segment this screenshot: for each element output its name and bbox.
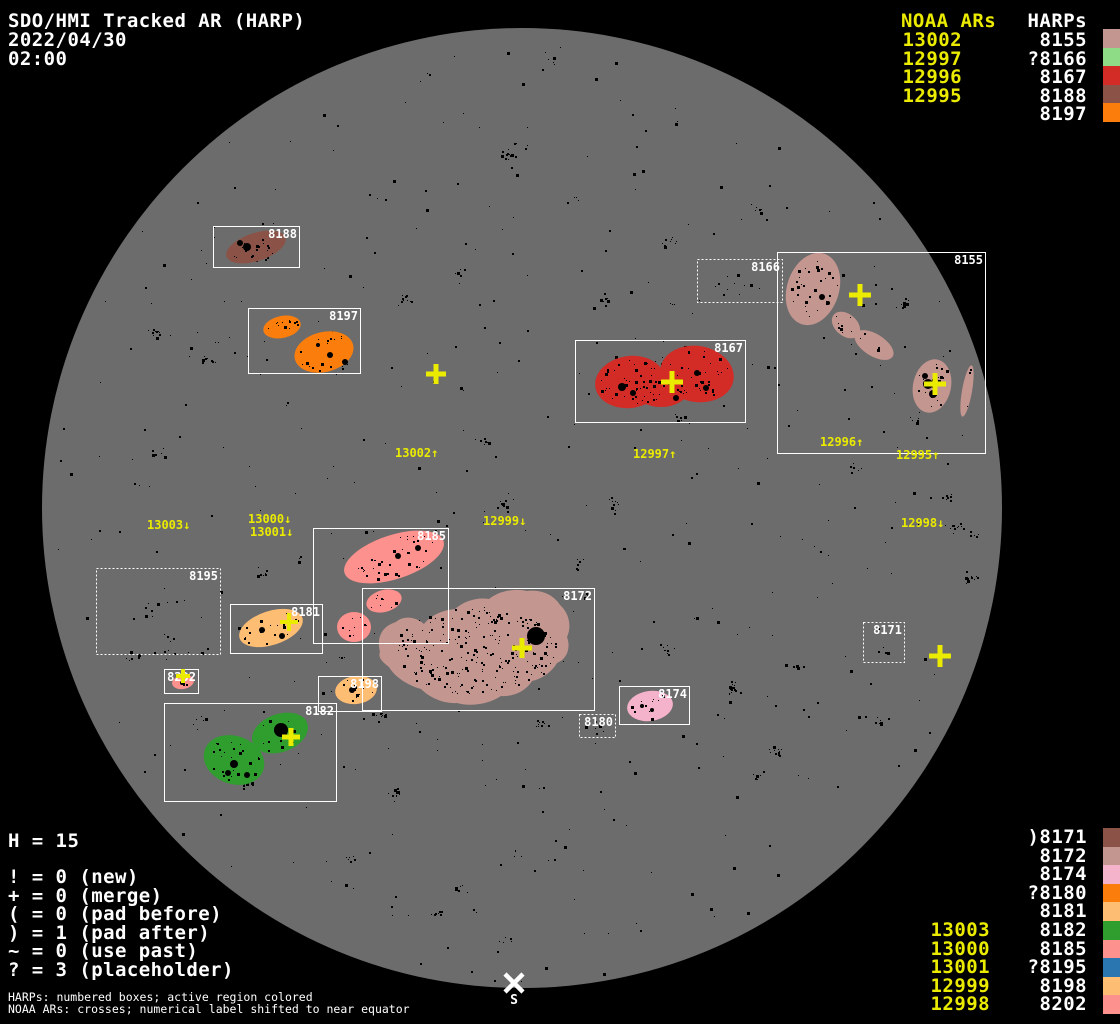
- harp-number: 8202: [890, 995, 1087, 1014]
- harp-map-screenshot: 8188819781668155816781958185818182028198…: [0, 0, 1120, 1024]
- harp-box-label-8182: 8182: [305, 704, 334, 718]
- harp-color-swatch: [1103, 940, 1120, 959]
- noaa-label-12997: 12997↑: [633, 447, 676, 461]
- harp-box-label-8185: 8185: [417, 529, 446, 543]
- harp-box-label-8198: 8198: [350, 677, 379, 691]
- noaa-label-12996: 12996↑: [820, 435, 863, 449]
- harp-box-label-8180: 8180: [584, 715, 613, 729]
- noaa-label-13002: 13002↑: [395, 446, 438, 460]
- harp-color-swatch: [1103, 995, 1120, 1014]
- harp-color-swatch: [1103, 958, 1120, 977]
- time-label: 02:00: [8, 50, 305, 69]
- harp-box-label-8181: 8181: [291, 605, 320, 619]
- legend-bottom-right: )817181728174?81808181130038182130008185…: [890, 0, 1120, 1024]
- harp-box-label-8174: 8174: [658, 687, 687, 701]
- noaa-label-13001: 13001↓: [250, 525, 293, 539]
- harp-color-swatch: [1103, 865, 1120, 884]
- harp-box-label-8166: 8166: [751, 260, 780, 274]
- harp-color-swatch: [1103, 902, 1120, 921]
- noaa-label-12999: 12999↓: [483, 514, 526, 528]
- harp-box-label-8172: 8172: [563, 589, 592, 603]
- solar-disk: [42, 28, 1002, 988]
- harp-color-swatch: [1103, 828, 1120, 847]
- harp-box-label-8167: 8167: [714, 341, 743, 355]
- footnote-noaa: NOAA ARs: crosses; numerical label shift…: [8, 1003, 410, 1015]
- noaa-label-13000: 13000↓: [248, 512, 291, 526]
- flag-stat-line: ? = 3 (placeholder): [8, 961, 234, 980]
- noaa-label-13003: 13003↓: [147, 518, 190, 532]
- harp-color-swatch: [1103, 921, 1120, 940]
- title-block: SDO/HMI Tracked AR (HARP) 2022/04/30 02:…: [8, 12, 305, 69]
- harp-box-label-8197: 8197: [329, 309, 358, 323]
- harp-color-swatch: [1103, 884, 1120, 903]
- harp-box-label-8188: 8188: [268, 227, 297, 241]
- harp-color-swatch: [1103, 977, 1120, 996]
- south-pole-label: S: [510, 993, 518, 1008]
- harp-count: H = 15: [8, 832, 79, 851]
- harp-color-swatch: [1103, 847, 1120, 866]
- legend-row-8202: 129988202: [890, 995, 1120, 1014]
- harp-box-label-8195: 8195: [189, 569, 218, 583]
